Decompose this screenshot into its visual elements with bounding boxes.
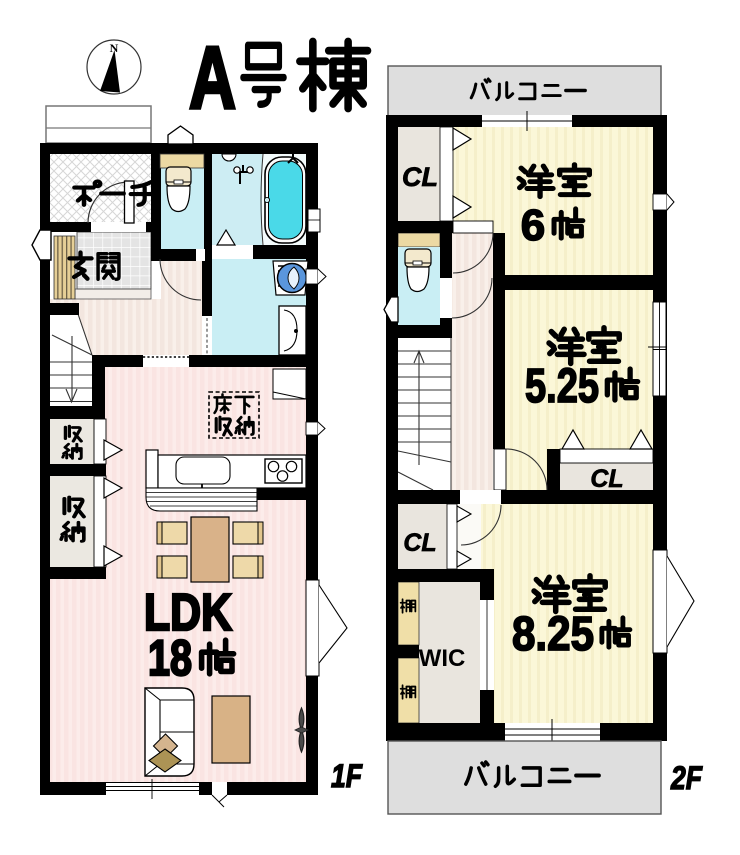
svg-text:6: 6: [521, 201, 545, 250]
svg-text:WIC: WIC: [419, 645, 466, 672]
svg-text:CL: CL: [403, 529, 436, 557]
svg-text:N: N: [110, 41, 119, 55]
svg-text:A: A: [189, 28, 236, 127]
svg-text:CL: CL: [590, 465, 623, 493]
svg-text:18: 18: [148, 630, 192, 686]
svg-text:CL: CL: [402, 162, 438, 192]
svg-text:2F: 2F: [670, 760, 703, 796]
svg-text:1F: 1F: [331, 758, 363, 794]
svg-text:8.25: 8.25: [512, 608, 594, 661]
svg-text:5.25: 5.25: [525, 360, 599, 413]
